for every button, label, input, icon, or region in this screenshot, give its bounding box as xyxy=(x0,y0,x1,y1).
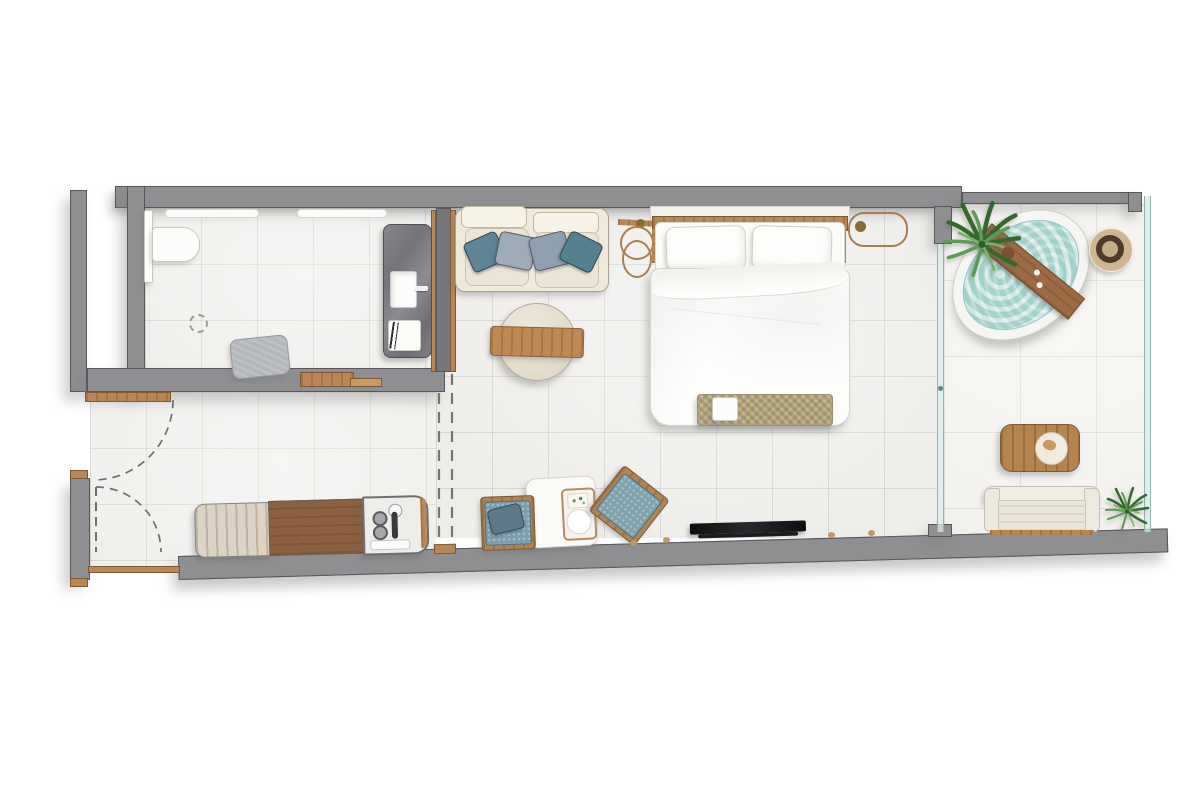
outdoor-sofa-base xyxy=(990,530,1094,535)
sofa xyxy=(455,206,607,290)
board-peg xyxy=(1033,268,1041,276)
entry-wall-cap-bottom xyxy=(70,578,88,587)
balcony-wall-endcap xyxy=(1128,192,1142,212)
interior-door-threshold xyxy=(85,392,171,402)
hob-knob xyxy=(372,511,387,526)
closet-partition-wall xyxy=(436,208,451,372)
kitchen-worktop xyxy=(268,499,365,556)
board-peg xyxy=(1035,281,1043,289)
sink-unit-wood-edge xyxy=(420,497,427,548)
coffee-table-tray xyxy=(490,326,585,358)
kitchen-faucet xyxy=(391,512,398,539)
floor-plan-canvas xyxy=(0,0,1200,801)
bathroom-left-wall xyxy=(127,186,145,392)
outdoor-sofa-seat xyxy=(998,500,1086,532)
balcony-plant-large xyxy=(938,196,1026,284)
toilet xyxy=(152,227,200,262)
outdoor-table xyxy=(1000,424,1080,472)
entry-left-wall xyxy=(70,478,90,580)
shower-niche xyxy=(297,209,387,218)
entry-bottom-threshold xyxy=(88,566,180,573)
wall-fitting-dot xyxy=(630,540,637,546)
tv-unit xyxy=(690,520,806,541)
sink-tray xyxy=(370,539,410,550)
tray-plant xyxy=(567,493,589,509)
dining-chair-left xyxy=(480,495,534,549)
sofa-back-cushion xyxy=(461,206,527,228)
vanity-faucet xyxy=(415,286,428,291)
dining-table xyxy=(525,475,599,549)
floor-drain xyxy=(189,314,208,333)
serving-tray xyxy=(561,487,598,541)
top-wall xyxy=(115,186,962,208)
outdoor-sofa-arm xyxy=(1084,488,1100,532)
pendant-lamp-right xyxy=(848,212,906,244)
double-bed xyxy=(650,206,848,424)
pendant-brass-dot xyxy=(855,221,866,232)
shaft-left-wall xyxy=(70,190,87,392)
woven-bowl xyxy=(1089,228,1133,272)
bed-pillow xyxy=(665,225,746,271)
kitchen-cabinet xyxy=(194,502,271,558)
tray-plate xyxy=(566,508,592,534)
vanity-sink xyxy=(390,271,417,308)
glass-door-handle xyxy=(938,386,943,391)
kitchenette xyxy=(194,494,431,558)
bench-towel xyxy=(712,397,738,421)
wall-fitting-dot xyxy=(828,532,835,538)
bathroom-sliding-door-leaf xyxy=(350,378,382,387)
bowl-center xyxy=(1102,241,1118,257)
pendant-shade xyxy=(622,240,652,278)
wall-fitting-dot xyxy=(663,537,670,543)
sofa-back-cushion xyxy=(533,212,599,234)
bath-mat xyxy=(229,334,291,380)
partition-threshold xyxy=(434,544,456,555)
hob-knob xyxy=(373,525,388,540)
wall-fitting-dot xyxy=(868,530,875,536)
balcony-glass-railing xyxy=(1144,196,1151,532)
balcony-plant-small xyxy=(1102,484,1152,534)
outdoor-sofa xyxy=(984,486,1098,534)
shower-niche xyxy=(165,209,259,218)
kitchen-sink-unit xyxy=(362,495,430,556)
bathroom-sliding-door xyxy=(300,372,354,387)
entry-wall-cap-top xyxy=(70,470,88,479)
